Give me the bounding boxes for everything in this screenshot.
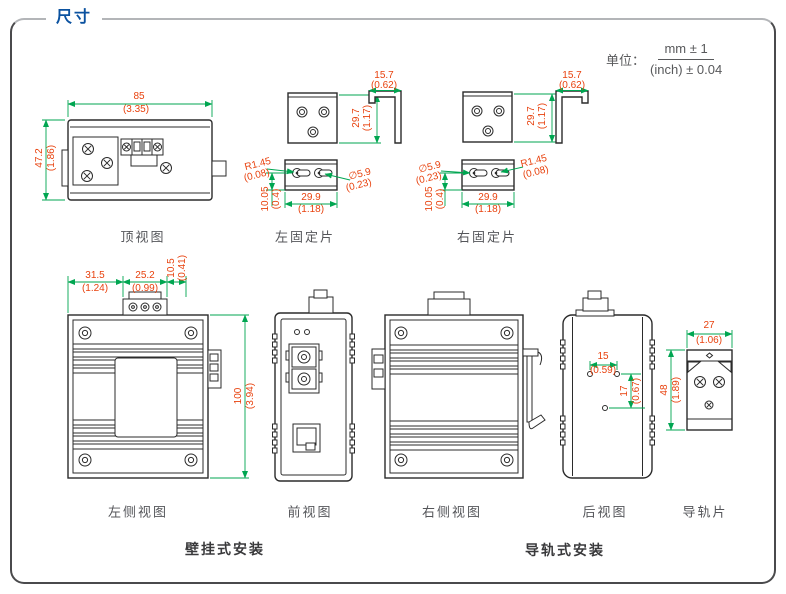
dim-lside-offset-mm: 31.5: [85, 271, 104, 281]
din-rail-clip: [523, 349, 545, 429]
dim-lplate-spacing-mm: 29.9: [301, 193, 320, 203]
label-rail-plate: 导轨片: [682, 502, 727, 521]
label-rear: 后视图: [582, 502, 627, 521]
dim-rear-holes-h-mm: 15: [597, 352, 608, 362]
dim-lplate-spacing-inch: (1.18): [298, 205, 324, 215]
dim-rail-width-mm: 27: [703, 321, 714, 331]
corner-screw: [185, 327, 197, 339]
mount-hole: [308, 127, 318, 137]
dim-rail-height-inch: (1.89): [672, 377, 682, 403]
bracket-side-profile: [556, 91, 588, 143]
label-left-plate: 左固定片: [275, 227, 335, 246]
dim-top-height-mm: 47.2: [35, 148, 45, 167]
corner-screw: [395, 454, 407, 466]
dim-rplate-depth-inch: (0.62): [559, 81, 585, 91]
terminal-block: [428, 292, 470, 315]
right-side-view-drawing: [372, 292, 545, 478]
dim-lplate-depth-inch: (0.62): [371, 81, 397, 91]
led-indicator: [295, 330, 300, 335]
dim-lside-edge-inch: (0.41): [178, 255, 188, 281]
label-right-side: 右侧视图: [422, 502, 482, 521]
dim-lplate-offset-inch: (0.4): [272, 189, 282, 210]
keyhole-slot: [293, 169, 311, 178]
sc-fiber-connector: [286, 344, 322, 393]
screw-icon: [83, 144, 94, 155]
dim-top-width-mm: 85: [133, 92, 144, 102]
dim-lside-edge-mm: 10.5: [167, 258, 177, 277]
dimension-drawing-page: 尺寸 单位： mm ± 1 (inch) ± 0.04: [0, 0, 786, 594]
mount-hole: [483, 126, 493, 136]
dim-rail-height-mm: 48: [660, 384, 670, 395]
dim-lplate-height-mm: 29.7: [352, 108, 362, 127]
side-port-tab: [212, 161, 226, 176]
screw-icon: [695, 377, 706, 388]
label-din-mount: 导轨式安装: [525, 540, 605, 560]
unit-label: 单位：: [606, 50, 645, 69]
fiber-port-side: [372, 349, 385, 389]
dim-rplate-spacing-mm: 29.9: [478, 193, 497, 203]
dim-rplate-height-mm: 29.7: [527, 106, 537, 125]
screw-icon: [714, 377, 725, 388]
unit-mm: mm ± 1: [658, 40, 713, 60]
fiber-port-side: [208, 350, 221, 388]
screw-icon: [705, 401, 713, 409]
rj45-port: [293, 424, 320, 452]
label-right-plate: 右固定片: [457, 227, 517, 246]
keyhole-slot: [315, 169, 333, 178]
mount-hole: [319, 107, 329, 117]
corner-screw: [79, 327, 91, 339]
dim-lplate-offset-mm: 10.05: [261, 186, 271, 211]
screw-icon: [102, 158, 113, 169]
dim-lside-terminal-inch: (0.99): [132, 284, 158, 294]
corner-screw: [79, 454, 91, 466]
label-top-view: 顶视图: [120, 227, 165, 246]
dim-top-width-inch: (3.35): [123, 105, 149, 115]
front-view-drawing: [273, 290, 355, 481]
mount-hole: [603, 406, 608, 411]
mount-hole: [297, 107, 307, 117]
dim-top-height-inch: (1.86): [47, 145, 57, 171]
mount-hole: [494, 106, 504, 116]
label-left-side: 左侧视图: [108, 502, 168, 521]
dim-rplate-offset-inch: (0.4): [436, 189, 446, 210]
dim-rail-width-inch: (1.06): [696, 336, 722, 346]
dim-rplate-height-inch: (1.17): [538, 103, 548, 129]
dim-lside-height-inch: (3.94): [246, 383, 256, 409]
dim-lside-terminal-mm: 25.2: [135, 271, 154, 281]
label-front: 前视图: [287, 502, 332, 521]
unit-inch: (inch) ± 0.04: [650, 60, 722, 79]
corner-screw: [501, 327, 513, 339]
mount-hole: [472, 106, 482, 116]
left-plate-drawing: [266, 91, 401, 209]
label-wall-mount: 壁挂式安装: [185, 539, 265, 559]
bracket-side-profile: [369, 91, 401, 143]
terminal-block: [309, 290, 333, 313]
corner-screw: [501, 454, 513, 466]
dim-lside-height-mm: 100: [234, 388, 244, 405]
corner-screw: [185, 454, 197, 466]
unit-fraction: mm ± 1 (inch) ± 0.04: [650, 40, 722, 78]
dim-lside-offset-inch: (1.24): [82, 284, 108, 294]
left-side-view-drawing: [68, 276, 249, 478]
right-plate-drawing: [440, 91, 588, 209]
dim-rear-holes-h-inch: (0.59): [590, 366, 616, 376]
dim-rplate-spacing-inch: (1.18): [475, 205, 501, 215]
dim-rear-holes-v-inch: (0.67): [632, 378, 642, 404]
unit-note: 单位： mm ± 1 (inch) ± 0.04: [606, 40, 722, 78]
dim-lplate-height-inch: (1.17): [363, 105, 373, 131]
keyhole-slot: [470, 169, 488, 178]
corner-screw: [395, 327, 407, 339]
terminal-block: [123, 292, 167, 315]
dim-rear-holes-v-mm: 17: [620, 385, 630, 396]
keyhole-slot: [492, 169, 510, 178]
screw-icon: [82, 171, 93, 182]
page-title: 尺寸: [46, 3, 102, 27]
led-indicator: [305, 330, 310, 335]
terminal-block: [576, 291, 614, 316]
top-view-drawing: [42, 100, 226, 200]
screw-icon: [161, 163, 172, 174]
dim-rplate-offset-mm: 10.05: [425, 186, 435, 211]
